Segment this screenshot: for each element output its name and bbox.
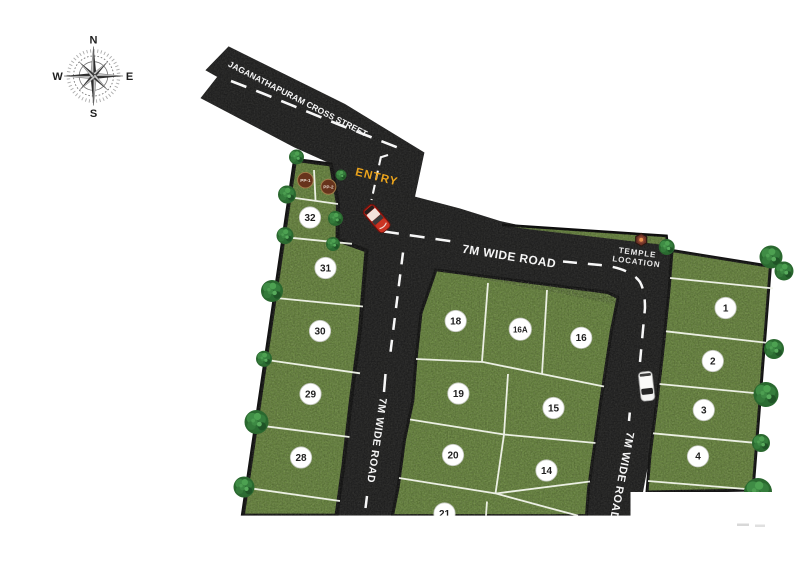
svg-text:N: N bbox=[90, 35, 98, 47]
svg-text:32: 32 bbox=[304, 213, 316, 224]
svg-text:4: 4 bbox=[695, 452, 701, 463]
svg-text:15: 15 bbox=[548, 403, 560, 414]
svg-text:3: 3 bbox=[701, 405, 707, 416]
svg-text:1: 1 bbox=[723, 303, 729, 314]
svg-text:W: W bbox=[52, 71, 63, 83]
svg-text:19: 19 bbox=[453, 389, 465, 400]
svg-text:2: 2 bbox=[710, 356, 716, 367]
svg-text:30: 30 bbox=[314, 326, 326, 337]
svg-text:14: 14 bbox=[541, 466, 553, 477]
svg-text:PP-2: PP-2 bbox=[323, 185, 334, 190]
svg-text:E: E bbox=[126, 71, 133, 83]
svg-text:S: S bbox=[90, 108, 97, 120]
svg-text:28: 28 bbox=[295, 453, 307, 464]
svg-text:16A: 16A bbox=[513, 325, 528, 334]
svg-text:16: 16 bbox=[576, 333, 588, 344]
svg-text:31: 31 bbox=[320, 263, 332, 274]
svg-text:PP-1: PP-1 bbox=[300, 178, 311, 183]
svg-text:29: 29 bbox=[305, 389, 317, 400]
svg-text:18: 18 bbox=[450, 316, 462, 327]
svg-text:20: 20 bbox=[447, 450, 459, 461]
